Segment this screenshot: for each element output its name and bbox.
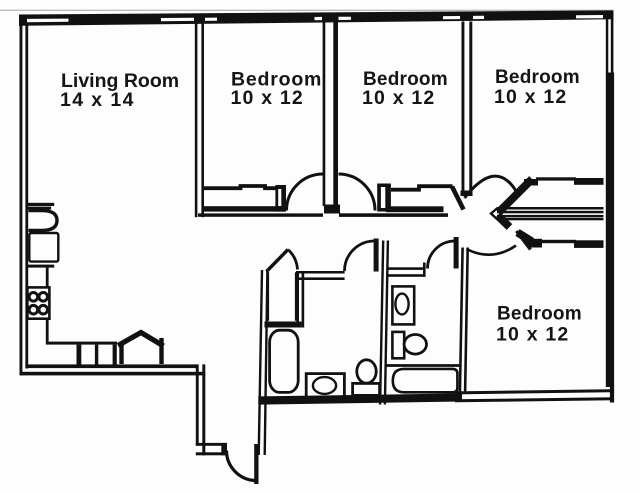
svg-text:10 x 12: 10 x 12 — [362, 87, 435, 109]
svg-text:14 x 14: 14 x 14 — [60, 89, 135, 111]
svg-text:10 x 12: 10 x 12 — [494, 86, 567, 108]
svg-text:10 x 12: 10 x 12 — [231, 87, 304, 109]
svg-text:Bedroom: Bedroom — [497, 304, 582, 325]
svg-text:10 x 12: 10 x 12 — [496, 323, 569, 345]
svg-text:Bedroom: Bedroom — [495, 67, 580, 88]
